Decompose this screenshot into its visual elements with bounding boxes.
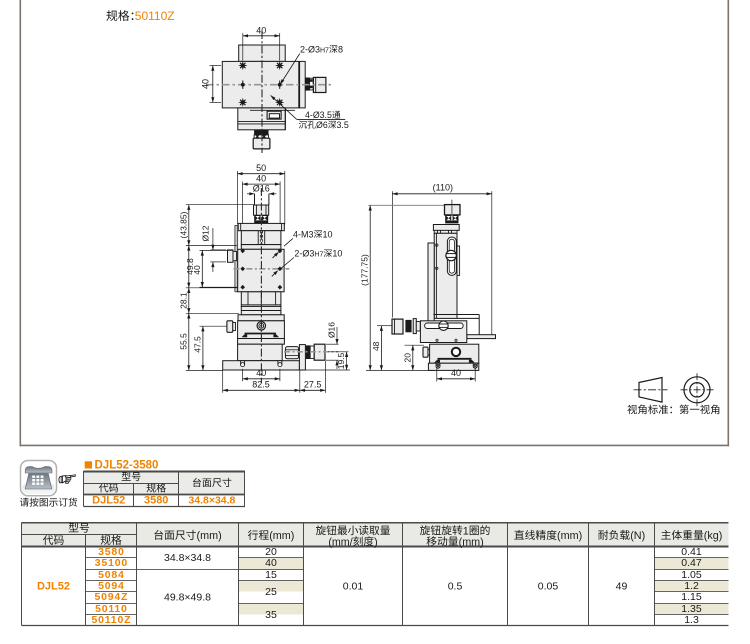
svg-text:0.5: 0.5	[448, 580, 463, 592]
svg-text:4-M3: 4-M3	[293, 229, 314, 239]
svg-text:40: 40	[451, 368, 461, 378]
svg-text:Ø6: Ø6	[316, 120, 328, 130]
svg-text:8: 8	[338, 44, 343, 54]
svg-text:(mm): (mm)	[459, 536, 484, 548]
svg-text:2-Ø3: 2-Ø3	[294, 248, 314, 258]
svg-text:3580: 3580	[144, 495, 168, 507]
svg-text:(177.75): (177.75)	[360, 254, 370, 286]
svg-text:35: 35	[265, 609, 277, 621]
svg-text:47.5: 47.5	[192, 336, 202, 353]
svg-text:27.5: 27.5	[304, 379, 322, 389]
svg-text:H7: H7	[314, 251, 323, 258]
svg-text:DJL52: DJL52	[37, 580, 70, 592]
svg-text:82.5: 82.5	[252, 379, 270, 389]
svg-text:34.8×34.8: 34.8×34.8	[164, 552, 211, 564]
svg-text:(N): (N)	[630, 530, 645, 542]
svg-text:4-Ø3.5: 4-Ø3.5	[305, 110, 332, 120]
svg-text:Ø16: Ø16	[326, 322, 336, 338]
svg-text:49: 49	[616, 580, 628, 592]
svg-text:40: 40	[201, 79, 211, 89]
svg-text:(mm): (mm)	[557, 530, 582, 542]
svg-text:DJL52: DJL52	[92, 495, 125, 507]
svg-text:2-Ø3: 2-Ø3	[300, 44, 320, 54]
svg-text:1.3: 1.3	[684, 614, 699, 626]
svg-text:40: 40	[265, 557, 277, 569]
svg-text:(kg): (kg)	[704, 530, 723, 542]
svg-text:): )	[374, 536, 378, 548]
svg-text:Ø16: Ø16	[253, 183, 270, 193]
svg-text:(mm/: (mm/	[328, 536, 352, 548]
svg-text:25: 25	[265, 586, 277, 598]
svg-text:10: 10	[323, 229, 333, 239]
svg-text:15: 15	[265, 569, 277, 581]
svg-text:(mm): (mm)	[269, 530, 294, 542]
svg-text:50: 50	[256, 163, 266, 173]
svg-text:Ø12: Ø12	[200, 225, 210, 241]
svg-text:10: 10	[332, 248, 342, 258]
svg-text:40: 40	[256, 174, 266, 184]
svg-text:0.47: 0.47	[681, 557, 702, 569]
svg-text:20: 20	[402, 353, 412, 363]
svg-text:H7: H7	[320, 47, 329, 54]
svg-text:48: 48	[371, 341, 381, 351]
svg-text:40: 40	[192, 265, 202, 275]
svg-text:DJL52-3580: DJL52-3580	[95, 460, 159, 472]
svg-text:55.5: 55.5	[178, 333, 188, 350]
svg-text:0.01: 0.01	[343, 580, 364, 592]
svg-text:5094Z: 5094Z	[95, 591, 129, 603]
svg-text:(43.85): (43.85)	[178, 211, 188, 238]
svg-text:19.5: 19.5	[336, 352, 346, 369]
svg-text:34.8×34.8: 34.8×34.8	[188, 495, 235, 507]
svg-text:50110Z: 50110Z	[135, 9, 175, 23]
svg-text:28.1: 28.1	[178, 292, 188, 309]
svg-text:40: 40	[256, 368, 266, 378]
svg-text:1.15: 1.15	[681, 591, 702, 603]
svg-text:49.8×49.8: 49.8×49.8	[164, 592, 211, 604]
svg-text:0.05: 0.05	[538, 580, 559, 592]
svg-text:3.5: 3.5	[337, 120, 349, 130]
svg-text:40: 40	[256, 25, 266, 35]
svg-text:(mm): (mm)	[197, 530, 222, 542]
svg-text:(110): (110)	[433, 183, 453, 193]
svg-text:50110Z: 50110Z	[91, 614, 131, 626]
svg-text:35100: 35100	[95, 557, 128, 569]
